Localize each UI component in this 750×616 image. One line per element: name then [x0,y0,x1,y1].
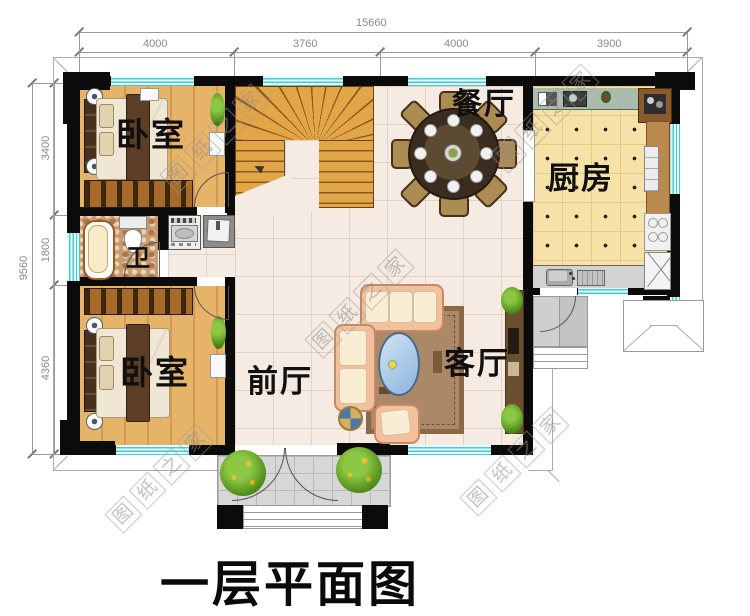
entry-steps [243,505,365,529]
washbasin [203,215,235,248]
bathtub-inner [88,225,108,273]
pillow [99,336,114,361]
dim-top-1: 4000 [143,38,167,50]
dim-top-3: 4000 [444,38,468,50]
base-cabinet [644,252,671,290]
room-label-living: 客厅 [444,348,510,379]
window-dining [407,76,487,86]
wardrobe-hangers [84,288,193,315]
corner-stove-cabinet [638,88,672,123]
room-label-bath: 卫 [126,247,152,271]
dim-left-3: 4360 [40,356,52,380]
dim-top-4: 3900 [597,38,621,50]
room-label-dining: 餐厅 [452,90,516,120]
porch-pillar [217,505,243,529]
window-living [407,445,492,455]
floor-rosette [338,406,363,431]
side-porch-roof [623,300,704,352]
room-label-bedroom-bottom: 卧室 [120,356,190,389]
plant [501,287,523,314]
floor-plan-canvas: 15660 4000 3760 4000 3900 9560 3400 1800… [0,0,750,616]
window-bedroom-top [110,76,195,86]
dim-left-2: 1800 [40,238,52,262]
centerpiece [444,144,462,162]
room-label-bedroom-top: 卧室 [116,118,186,151]
plant [211,316,226,349]
room-label-foyer: 前厅 [247,366,313,397]
page-title: 一层平面图 [160,545,420,616]
bush [220,450,266,496]
bush [336,447,382,493]
porch-pillar [362,505,388,529]
side-table [210,354,226,378]
toilet-tank [119,216,147,229]
pillow [99,365,114,390]
window-bathroom [67,232,80,282]
pillow [99,104,114,128]
dim-total-top: 15660 [356,17,387,29]
kitchen-sink-counter [533,265,644,288]
window-kitchen-bottom [577,287,629,295]
table-decor [388,360,397,369]
stair-run-right [318,140,374,208]
dim-left-1: 3400 [40,136,52,160]
window-stair [262,76,344,86]
stove-range [168,215,201,250]
refrigerator [644,146,659,192]
plant [501,404,523,434]
rear-steps [533,347,588,369]
dim-seg-line [79,52,687,53]
pillow [99,132,114,156]
dim-total-line [79,32,687,33]
room-label-kitchen: 厨房 [548,163,614,194]
nightstand [140,88,159,101]
dim-total-left: 9560 [18,256,30,280]
coffee-table [378,332,420,396]
dim-top-2: 3760 [293,38,317,50]
cooktop [644,213,671,251]
